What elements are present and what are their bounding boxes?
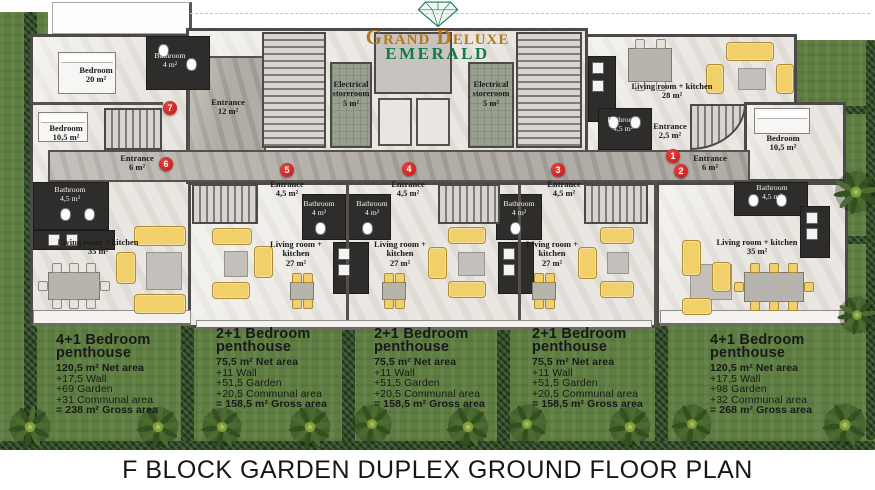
unit-marker-5: 5 <box>280 163 294 177</box>
chair <box>534 273 544 283</box>
rug <box>224 251 248 277</box>
stairs <box>584 184 648 224</box>
chair <box>292 273 302 283</box>
floor-plan-page: Bedroom20 m²Bathroom4 m²Bedroom10,5 m²En… <box>0 0 875 490</box>
unit-summary-line: +11 Wall <box>374 368 524 378</box>
unit-summary: 4+1 Bedroom penthouse120,5 m² Net area+1… <box>56 334 206 415</box>
toilet <box>84 208 95 221</box>
unit-summary-line: +17,5 Wall <box>56 374 206 384</box>
unit-summary-title: 2+1 Bedroom penthouse <box>374 328 484 353</box>
room-label: Entrance4,5 m² <box>270 180 304 199</box>
room-label: Bathroom4,5 m² <box>756 184 787 201</box>
dining-table <box>382 282 406 300</box>
chair <box>788 263 798 273</box>
chair <box>750 301 760 311</box>
dining-table <box>744 272 804 302</box>
chair <box>303 273 313 283</box>
unit-summary: 2+1 Bedroom penthouse75,5 m² Net area+11… <box>374 328 524 409</box>
sofa <box>682 298 712 315</box>
room-label: Bathroom4 m² <box>303 200 334 217</box>
room-label: Bathroom4 m² <box>503 200 534 217</box>
appliance <box>592 62 604 74</box>
sofa <box>600 281 634 298</box>
sofa <box>776 64 794 94</box>
chair <box>100 281 110 291</box>
palm-tree-icon <box>7 404 53 450</box>
sofa <box>134 226 186 246</box>
unit-marker-7: 7 <box>163 101 177 115</box>
chair <box>395 273 405 283</box>
unit-summary-line: +31 Communal area <box>56 395 206 405</box>
stairs <box>438 184 500 224</box>
toilet <box>315 222 326 235</box>
room-label: Entrance4,5 m² <box>391 180 425 199</box>
elevator <box>378 98 412 146</box>
rug <box>458 252 485 276</box>
room-label: Entrance6 m² <box>120 154 154 173</box>
unit-summary-line: 120,5 m² Net area <box>56 363 206 373</box>
sofa <box>448 281 486 298</box>
stairs <box>104 108 162 150</box>
rug <box>146 252 182 290</box>
room-label: Living room + kitchen28 m² <box>632 82 713 101</box>
chair <box>86 299 96 309</box>
appliance <box>338 248 350 260</box>
chair <box>734 282 744 292</box>
unit-marker-1: 1 <box>666 149 680 163</box>
unit-summary-title: 2+1 Bedroom penthouse <box>216 328 326 353</box>
chair <box>534 299 544 309</box>
unit-summary-line: +98 Garden <box>710 384 860 394</box>
room-label: Entrance2,5 m² <box>653 122 687 141</box>
unit-summary-title: 4+1 Bedroom penthouse <box>710 334 820 359</box>
sofa <box>428 247 447 279</box>
unit-marker-6: 6 <box>159 157 173 171</box>
unit-summary-line: +17,5 Wall <box>710 374 860 384</box>
room-label: Living room + kitchen35 m² <box>717 238 798 257</box>
room-label: Living room + kitchen35 m² <box>58 238 139 257</box>
sofa <box>212 228 252 245</box>
unit-summary-line: +20,5 Communal area <box>216 389 366 399</box>
sofa <box>712 262 731 292</box>
appliance <box>503 248 515 260</box>
chair <box>292 299 302 309</box>
toilet <box>60 208 71 221</box>
rug <box>738 68 766 90</box>
unit-summary-line: +20,5 Communal area <box>374 389 524 399</box>
unit-summary-line: 75,5 m² Net area <box>374 357 524 367</box>
unit-summary-line: +20,5 Communal area <box>532 389 682 399</box>
palm-tree-icon <box>200 405 244 449</box>
chair <box>52 263 62 273</box>
unit-summary-line: = 238 m² Gross area <box>56 405 206 415</box>
unit-summary-line: +32 Communal area <box>710 395 860 405</box>
unit-summary-line: 120,5 m² Net area <box>710 363 860 373</box>
dining-table <box>290 282 314 300</box>
rug <box>607 252 629 274</box>
chair <box>52 299 62 309</box>
chair <box>804 282 814 292</box>
dining-table <box>532 282 556 300</box>
room-label: Bathroom4,5 m² <box>607 116 638 133</box>
unit-summary-line: +69 Garden <box>56 384 206 394</box>
chair <box>303 299 313 309</box>
sofa <box>578 247 597 279</box>
room-label: Entrance6 m² <box>693 154 727 173</box>
palm-tree-icon <box>607 404 653 450</box>
plan-title: F BLOCK GARDEN DUPLEX GROUND FLOOR PLAN <box>0 456 875 485</box>
appliance <box>806 212 818 224</box>
chair <box>750 263 760 273</box>
unit-summary-line: +51,5 Garden <box>216 378 366 388</box>
stairs <box>192 184 258 224</box>
chair <box>788 301 798 311</box>
room-label: Bathroom4 m² <box>356 200 387 217</box>
unit-summary: 2+1 Bedroom penthouse75,5 m² Net area+11… <box>216 328 366 409</box>
unit-summary-line: 75,5 m² Net area <box>216 357 366 367</box>
sofa <box>212 282 250 299</box>
room-label: Bathroom4,5 m² <box>54 186 85 203</box>
appliance <box>806 228 818 240</box>
toilet <box>510 222 521 235</box>
unit-summary-line: = 158,5 m² Gross area <box>216 399 366 409</box>
sofa <box>134 294 186 314</box>
appliance <box>338 264 350 276</box>
appliance <box>592 80 604 92</box>
logo: Grand Deluxe EMERALD <box>0 0 875 61</box>
sofa <box>600 227 634 244</box>
unit-summary-line: +51,5 Garden <box>374 378 524 388</box>
chair <box>86 263 96 273</box>
chair <box>545 299 555 309</box>
emerald-diamond-icon <box>412 0 464 28</box>
room-label: Electricalstoreroom5 m² <box>473 80 510 108</box>
room-label: Living room +kitchen27 m² <box>270 240 322 268</box>
bed <box>754 108 810 134</box>
chair <box>769 301 779 311</box>
room-label: Entrance12 m² <box>211 98 245 117</box>
room-label: Entrance4,5 m² <box>547 180 581 199</box>
palm-tree-icon <box>287 404 333 450</box>
unit-marker-3: 3 <box>551 163 565 177</box>
dining-table <box>48 272 100 300</box>
palm-tree-icon <box>836 294 875 336</box>
room-label: Living room +kitchen27 m² <box>526 240 578 268</box>
unit-summary-line: = 268 m² Gross area <box>710 405 860 415</box>
hedge <box>0 441 875 450</box>
unit-summary-line: 75,5 m² Net area <box>532 357 682 367</box>
chair <box>69 263 79 273</box>
unit-summary-line: +11 Wall <box>216 368 366 378</box>
unit-summary-line: +51,5 Garden <box>532 378 682 388</box>
unit-summary-line: = 158,5 m² Gross area <box>532 399 682 409</box>
unit-summary-line: = 158,5 m² Gross area <box>374 399 524 409</box>
unit-summary: 2+1 Bedroom penthouse75,5 m² Net area+11… <box>532 328 682 409</box>
sofa <box>116 252 136 284</box>
unit-summary: 4+1 Bedroom penthouse120,5 m² Net area+1… <box>710 334 860 415</box>
wall <box>33 102 163 105</box>
chair <box>769 263 779 273</box>
chair <box>545 273 555 283</box>
chair <box>38 281 48 291</box>
unit-summary-title: 2+1 Bedroom penthouse <box>532 328 642 353</box>
floor-plan: Bedroom20 m²Bathroom4 m²Bedroom10,5 m²En… <box>0 0 875 490</box>
chair <box>69 299 79 309</box>
unit-marker-4: 4 <box>402 162 416 176</box>
wall <box>654 182 657 328</box>
room-label: Living room +kitchen27 m² <box>374 240 426 268</box>
chair <box>384 299 394 309</box>
room-label: Bedroom10,5 m² <box>766 134 799 153</box>
unit-summary-line: +11 Wall <box>532 368 682 378</box>
palm-tree-icon <box>445 404 491 450</box>
brand-subname: EMERALD <box>0 46 875 61</box>
unit-marker-2: 2 <box>674 164 688 178</box>
room-label: Electricalstoreroom5 m² <box>333 80 370 108</box>
chair <box>395 299 405 309</box>
sofa <box>682 240 701 276</box>
palm-tree-icon <box>832 168 875 216</box>
elevator <box>416 98 450 146</box>
sofa <box>448 227 486 244</box>
appliance <box>503 264 515 276</box>
room-label: Bedroom10,5 m² <box>49 124 82 143</box>
room-label: Bedroom20 m² <box>79 66 112 85</box>
chair <box>384 273 394 283</box>
unit-summary-title: 4+1 Bedroom penthouse <box>56 334 166 359</box>
toilet <box>362 222 373 235</box>
